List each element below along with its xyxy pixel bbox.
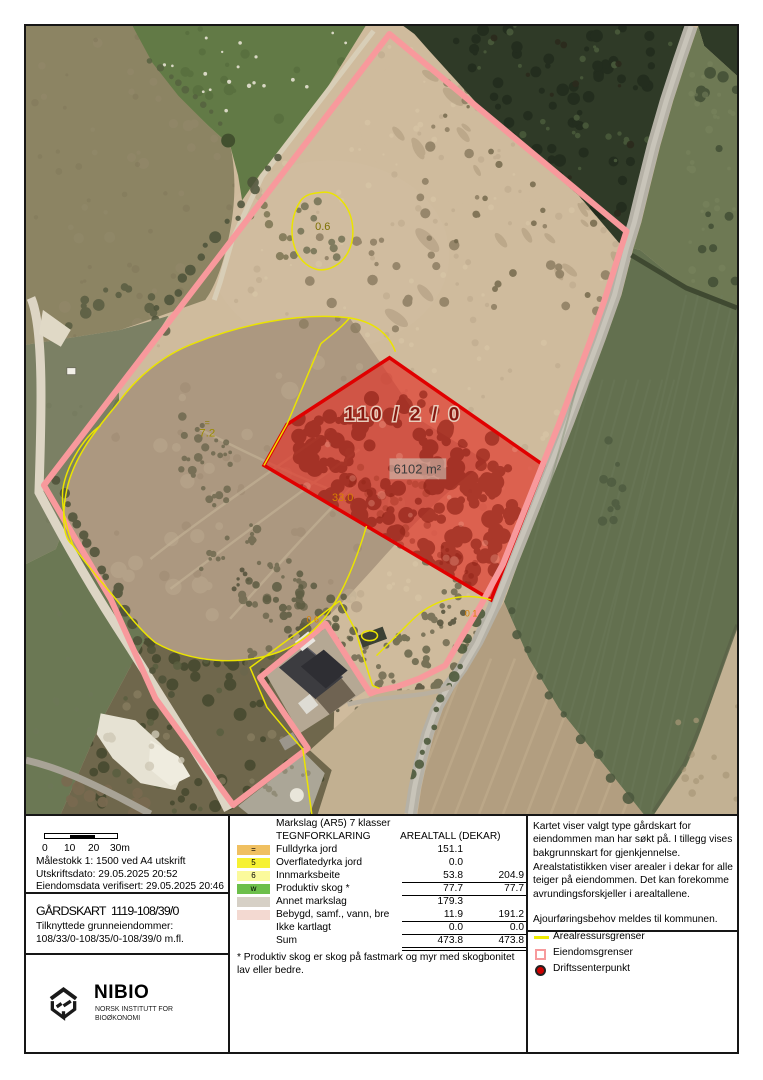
svg-text:6102 m²: 6102 m² [394, 461, 442, 476]
svg-text:7.2: 7.2 [199, 427, 215, 439]
svg-text:=: = [205, 417, 210, 427]
svg-text:0 6: 0 6 [307, 615, 319, 625]
svg-text:0.6: 0.6 [315, 221, 330, 233]
svg-text:33.0: 33.0 [332, 492, 353, 504]
svg-text:0 1: 0 1 [465, 609, 477, 619]
svg-text:110 / 2 / 0: 110 / 2 / 0 [344, 403, 462, 425]
